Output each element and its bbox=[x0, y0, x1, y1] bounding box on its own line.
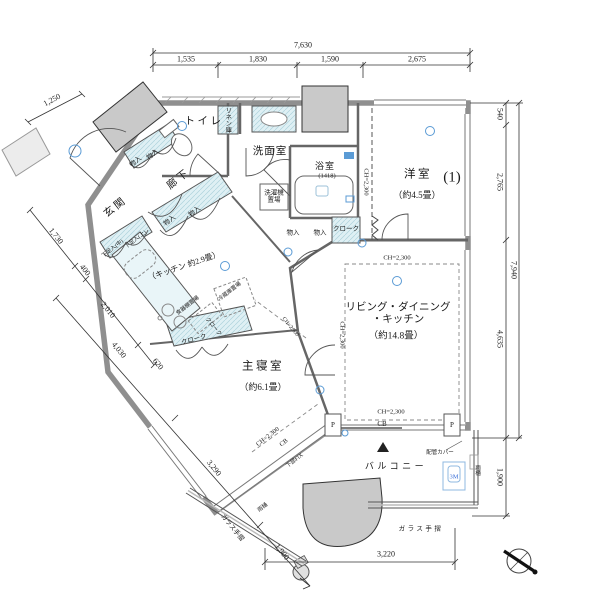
dim-right-7940: 7,940 bbox=[509, 261, 518, 279]
post-label-1: P bbox=[331, 421, 335, 429]
room-label-toilet: トイレ bbox=[185, 116, 224, 128]
room-label-bath: 浴室 bbox=[315, 161, 335, 171]
dim-right-4635: 4,635 bbox=[495, 330, 504, 348]
dim-right-2765: 2,765 bbox=[495, 173, 504, 191]
room-label-ldk-line1: リビング・ダイニング bbox=[346, 302, 451, 314]
m3-label: 3M bbox=[449, 473, 458, 480]
dim-top-seg-3: 1,590 bbox=[321, 54, 339, 63]
master-size-label: （約6.1畳） bbox=[239, 382, 286, 392]
ldk-size-label: （約14.8畳） bbox=[369, 332, 424, 343]
room-label-balcony: バルコニー bbox=[365, 461, 427, 471]
western-number-label: (1) bbox=[443, 169, 461, 186]
gutter-label-1: 雨樋 bbox=[474, 465, 480, 476]
ch-label-3: CH=2,300 bbox=[338, 321, 345, 348]
storage-label-6: 物入 bbox=[314, 229, 327, 236]
dim-top-seg-4: 2,675 bbox=[408, 54, 426, 63]
ch-label-4: CH=2,300 bbox=[377, 408, 404, 415]
ch-label-1: CH=2,300 bbox=[362, 168, 369, 195]
glass-rail-label-2: ガラス手摺 bbox=[399, 525, 444, 532]
ch-label-2: CH=2,300 bbox=[383, 254, 410, 261]
cloak-label-3: クローク bbox=[333, 225, 359, 232]
dim-top-seg-1: 1,535 bbox=[177, 54, 195, 63]
room-label-ldk-line2: ・キッチン bbox=[372, 314, 425, 326]
compass-icon bbox=[504, 549, 538, 575]
room-label-linen: リネン庫 bbox=[223, 107, 230, 133]
washer-space-label: 洗濯機置場 bbox=[263, 190, 285, 205]
pipe-cover-label: 配管カバー bbox=[426, 450, 454, 456]
dim-bottom-3220: 3,220 bbox=[377, 549, 395, 558]
floor-plan-page: トイレ リネン庫 洗面室 浴室 (1418) 洋室 (1) （約4.5畳） 玄関… bbox=[0, 0, 602, 612]
dim-right-1900: 1,900 bbox=[495, 468, 504, 486]
cb-label-1: CB bbox=[377, 420, 386, 428]
room-label-western: 洋室 bbox=[404, 168, 432, 181]
dim-top-total: 7,630 bbox=[294, 40, 312, 49]
floor-plan-canvas bbox=[0, 0, 602, 612]
dim-top-seg-2: 1,830 bbox=[249, 54, 267, 63]
bath-size-label: (1418) bbox=[318, 172, 335, 179]
storage-label-5: 物入 bbox=[287, 229, 300, 236]
dim-right-540: 540 bbox=[495, 108, 504, 120]
western-size-label: （約4.5畳） bbox=[393, 190, 440, 200]
room-label-washroom: 洗面室 bbox=[253, 146, 288, 158]
room-label-master: 主寝室 bbox=[242, 360, 284, 373]
post-label-2: P bbox=[450, 421, 454, 429]
